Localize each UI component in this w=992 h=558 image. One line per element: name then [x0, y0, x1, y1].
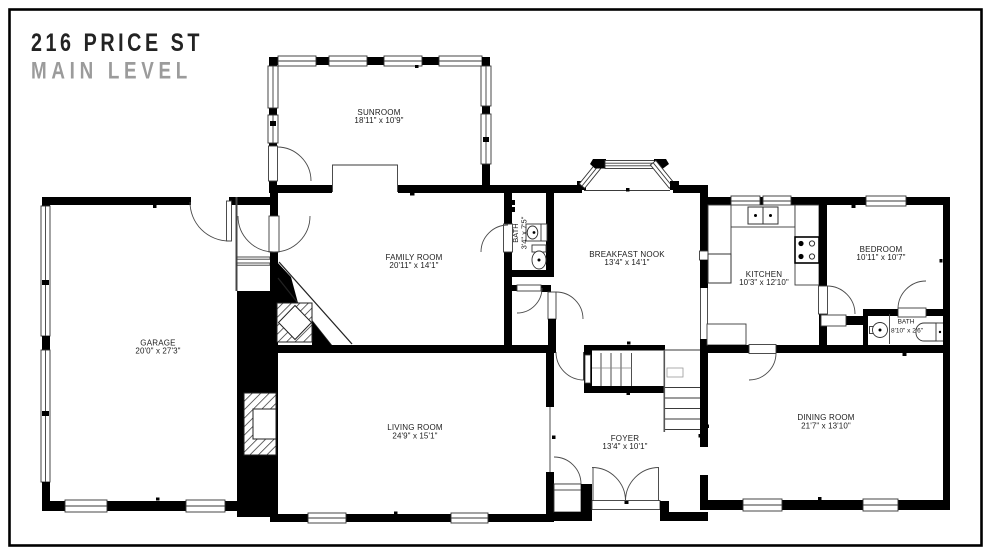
svg-text:20'0" x 27'3": 20'0" x 27'3": [135, 347, 180, 356]
svg-text:13'4" x 10'1": 13'4" x 10'1": [602, 442, 647, 451]
svg-text:21'7" x 13'10": 21'7" x 13'10": [801, 422, 851, 431]
svg-text:8'10" x 2'6": 8'10" x 2'6": [891, 328, 924, 335]
svg-text:20'11" x 14'1": 20'11" x 14'1": [389, 261, 438, 270]
svg-text:MAIN LEVEL: MAIN LEVEL: [31, 58, 192, 85]
svg-text:13'4" x 14'1": 13'4" x 14'1": [604, 258, 649, 267]
svg-text:10'3" x 12'10": 10'3" x 12'10": [739, 278, 789, 287]
svg-text:24'9" x 15'1": 24'9" x 15'1": [392, 432, 437, 441]
svg-text:18'11" x 10'9": 18'11" x 10'9": [354, 116, 403, 125]
svg-text:10'11" x 10'7": 10'11" x 10'7": [856, 253, 905, 262]
svg-text:BATH: BATH: [898, 319, 915, 326]
svg-text:216 PRICE ST: 216 PRICE ST: [31, 29, 203, 57]
svg-text:3'4" x 7'5": 3'4" x 7'5": [520, 216, 529, 249]
